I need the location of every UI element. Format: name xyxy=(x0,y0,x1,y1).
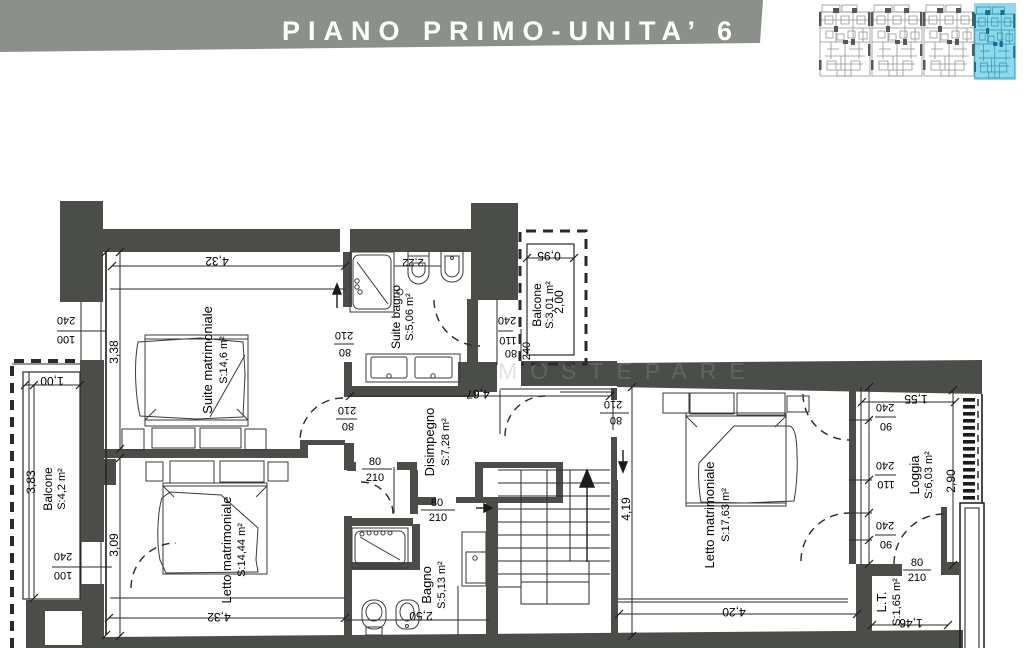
svg-text:3,83: 3,83 xyxy=(24,470,38,494)
svg-text:80: 80 xyxy=(610,414,622,426)
svg-text:L.T.: L.T. xyxy=(874,592,889,613)
svg-text:90: 90 xyxy=(880,538,892,550)
svg-text:Letto matrimoniale: Letto matrimoniale xyxy=(219,497,234,604)
svg-text:S:5,13 m²: S:5,13 m² xyxy=(436,561,448,609)
svg-text:1,00: 1,00 xyxy=(40,374,64,388)
svg-text:240: 240 xyxy=(57,314,75,326)
svg-text:110: 110 xyxy=(877,478,895,490)
svg-text:4,32: 4,32 xyxy=(205,254,229,268)
svg-text:80: 80 xyxy=(369,456,381,468)
svg-text:S:7,28 m²: S:7,28 m² xyxy=(440,418,452,466)
svg-text:PIANO PRIMO-UNITA’ 6: PIANO PRIMO-UNITA’ 6 xyxy=(282,16,740,46)
svg-text:210: 210 xyxy=(908,572,926,584)
svg-text:240: 240 xyxy=(54,550,72,562)
svg-text:80: 80 xyxy=(342,420,354,432)
svg-text:3,09: 3,09 xyxy=(107,533,121,557)
svg-text:80: 80 xyxy=(911,557,923,569)
svg-text:S:6,03 m²: S:6,03 m² xyxy=(923,451,935,499)
svg-text:210: 210 xyxy=(429,512,447,524)
svg-text:Loggia: Loggia xyxy=(907,455,922,495)
svg-text:240: 240 xyxy=(876,519,894,531)
svg-text:S:4,2 m²: S:4,2 m² xyxy=(56,468,68,510)
svg-text:S:17,63 m²: S:17,63 m² xyxy=(720,488,732,542)
svg-text:Balcone: Balcone xyxy=(41,467,55,511)
svg-text:210: 210 xyxy=(338,404,356,416)
svg-text:2,00: 2,00 xyxy=(552,290,566,314)
svg-text:240: 240 xyxy=(521,342,533,360)
svg-text:100: 100 xyxy=(54,569,72,581)
svg-text:2,90: 2,90 xyxy=(944,469,958,493)
svg-text:Suite bagno: Suite bagno xyxy=(389,285,403,349)
svg-text:240: 240 xyxy=(876,459,894,471)
svg-text:Disimpegno: Disimpegno xyxy=(422,408,437,477)
svg-text:80: 80 xyxy=(505,347,517,359)
svg-text:4,67: 4,67 xyxy=(466,387,490,401)
svg-text:4,32: 4,32 xyxy=(207,610,231,624)
svg-text:Suite matrimoniale: Suite matrimoniale xyxy=(200,306,215,414)
svg-text:90: 90 xyxy=(880,420,892,432)
svg-text:2,50: 2,50 xyxy=(409,609,433,623)
svg-text:Letto matrimoniale: Letto matrimoniale xyxy=(702,462,717,569)
svg-text:110: 110 xyxy=(499,334,517,346)
svg-text:4,19: 4,19 xyxy=(619,497,633,521)
svg-text:Bagno: Bagno xyxy=(419,566,434,604)
svg-text:S:14,6 m²: S:14,6 m² xyxy=(218,336,230,384)
svg-text:80: 80 xyxy=(431,497,443,509)
svg-text:4,20: 4,20 xyxy=(722,605,746,619)
svg-text:240: 240 xyxy=(876,401,894,413)
svg-text:S:5,06 m²: S:5,06 m² xyxy=(404,293,416,341)
svg-text:210: 210 xyxy=(335,329,353,341)
svg-text:2,22: 2,22 xyxy=(402,256,423,268)
svg-text:210: 210 xyxy=(366,472,384,484)
svg-text:1,55: 1,55 xyxy=(904,392,928,406)
svg-text:S:14,44 m²: S:14,44 m² xyxy=(236,523,248,577)
svg-text:MOSTEPARE: MOSTEPARE xyxy=(498,358,758,384)
svg-text:Balcone: Balcone xyxy=(530,283,544,327)
svg-text:100: 100 xyxy=(57,333,75,345)
svg-text:3,38: 3,38 xyxy=(107,340,121,364)
svg-text:80: 80 xyxy=(339,346,351,358)
svg-text:1,46: 1,46 xyxy=(899,616,923,630)
svg-text:0,95: 0,95 xyxy=(537,249,561,263)
svg-text:240: 240 xyxy=(498,314,516,326)
